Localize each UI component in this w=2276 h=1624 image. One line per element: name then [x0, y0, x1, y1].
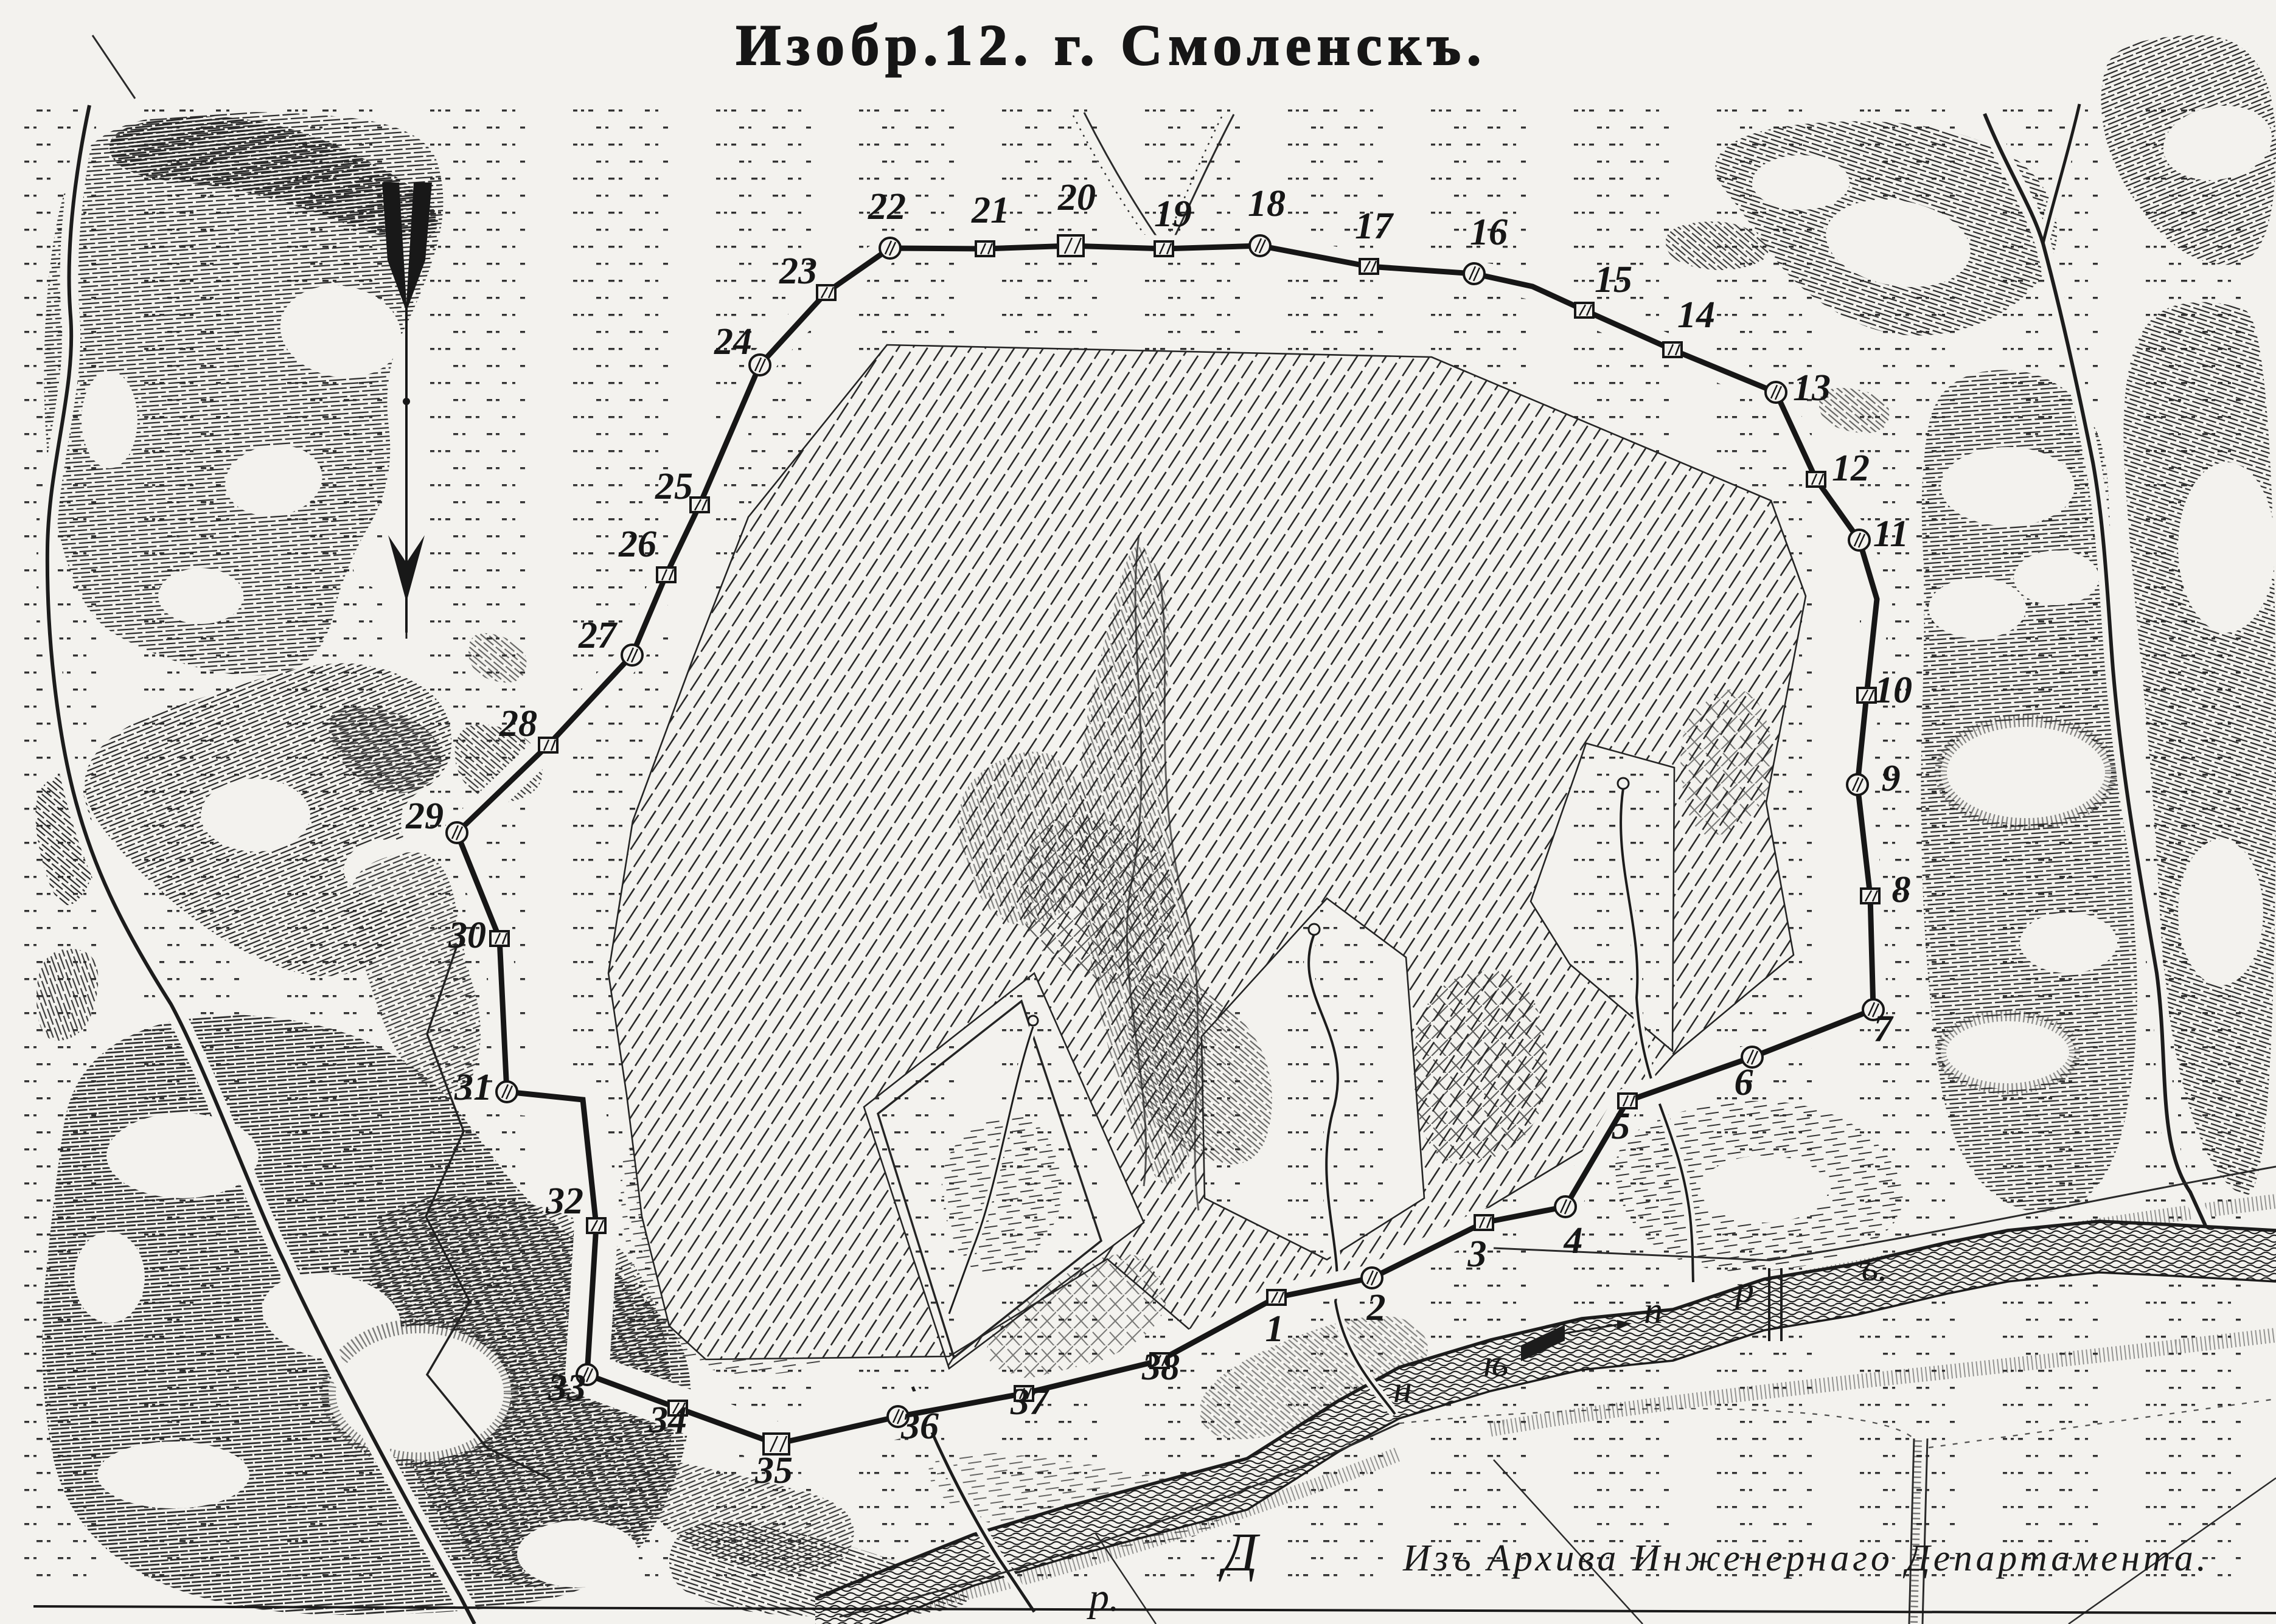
svg-text:19: 19: [1154, 193, 1192, 235]
svg-text:ъ.: ъ.: [1859, 1247, 1888, 1289]
svg-text:2: 2: [1366, 1287, 1386, 1328]
svg-text:33: 33: [548, 1367, 586, 1409]
svg-text:ѣ: ѣ: [1483, 1343, 1508, 1384]
svg-text:32: 32: [545, 1181, 583, 1222]
svg-text:1: 1: [1265, 1308, 1284, 1350]
svg-text:10: 10: [1874, 670, 1912, 711]
svg-text:13: 13: [1793, 367, 1831, 409]
svg-text:37: 37: [1010, 1381, 1050, 1423]
svg-text:р: р: [1733, 1269, 1754, 1310]
svg-text:12: 12: [1832, 448, 1870, 489]
svg-text:Изъ Архива Инженернаго Департа: Изъ Архива Инженернаго Департамента.: [1402, 1538, 2206, 1579]
svg-text:15: 15: [1595, 259, 1632, 300]
svg-text:6: 6: [1735, 1062, 1753, 1103]
svg-text:р.: р.: [1087, 1575, 1119, 1620]
svg-text:34: 34: [649, 1400, 687, 1441]
svg-text:16: 16: [1470, 212, 1508, 253]
svg-text:Д: Д: [1218, 1522, 1261, 1583]
svg-text:17: 17: [1355, 206, 1394, 247]
svg-text:5: 5: [1612, 1106, 1630, 1147]
svg-text:н: н: [1393, 1369, 1412, 1411]
svg-text:3: 3: [1467, 1234, 1487, 1275]
svg-text:14: 14: [1677, 294, 1715, 336]
svg-text:18: 18: [1248, 183, 1286, 224]
svg-text:38: 38: [1141, 1347, 1180, 1388]
svg-text:29: 29: [405, 796, 444, 837]
svg-text:21: 21: [971, 190, 1009, 231]
svg-text:4: 4: [1564, 1220, 1583, 1261]
svg-text:31: 31: [454, 1067, 492, 1108]
svg-text:11: 11: [1873, 513, 1909, 555]
svg-text:7: 7: [1874, 1008, 1895, 1050]
svg-text:8: 8: [1892, 869, 1911, 911]
svg-text:35: 35: [754, 1450, 793, 1491]
svg-text:20: 20: [1057, 177, 1096, 218]
svg-text:36: 36: [900, 1406, 939, 1447]
svg-text:9: 9: [1882, 758, 1901, 799]
svg-text:27: 27: [578, 615, 618, 656]
svg-text:26: 26: [618, 524, 656, 565]
svg-text:28: 28: [499, 703, 537, 744]
svg-text:30: 30: [448, 915, 486, 956]
svg-text:25: 25: [655, 466, 693, 507]
svg-text:23: 23: [779, 251, 817, 292]
svg-text:22: 22: [868, 186, 906, 227]
svg-text:п: п: [1644, 1290, 1663, 1331]
svg-text:24: 24: [714, 321, 752, 363]
